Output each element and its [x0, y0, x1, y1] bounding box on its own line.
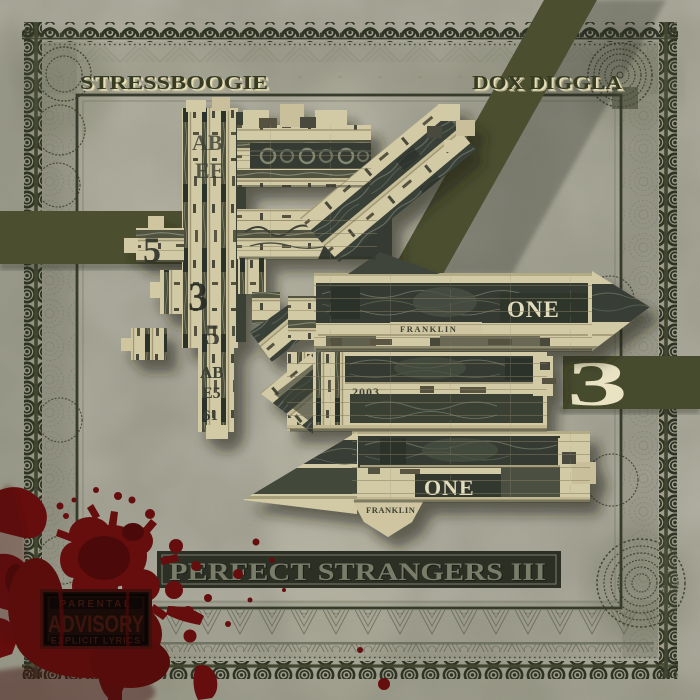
svg-text:5: 5 — [143, 230, 161, 270]
svg-text:PARENTAL: PARENTAL — [60, 599, 133, 610]
svg-text:FRANKLIN: FRANKLIN — [366, 505, 416, 515]
svg-text:3: 3 — [188, 274, 208, 319]
svg-text:E5: E5 — [202, 385, 221, 402]
svg-text:EE: EE — [195, 158, 224, 183]
svg-text:PERFECT STRANGERS III: PERFECT STRANGERS III — [169, 559, 546, 586]
svg-text:3: 3 — [567, 348, 628, 419]
svg-text:STRESSBOOGIE: STRESSBOOGIE — [80, 72, 268, 94]
svg-text:61: 61 — [203, 408, 218, 424]
svg-text:AB: AB — [200, 363, 224, 382]
svg-text:DOX DIGGLA: DOX DIGGLA — [472, 72, 623, 94]
svg-text:AB: AB — [192, 130, 223, 155]
